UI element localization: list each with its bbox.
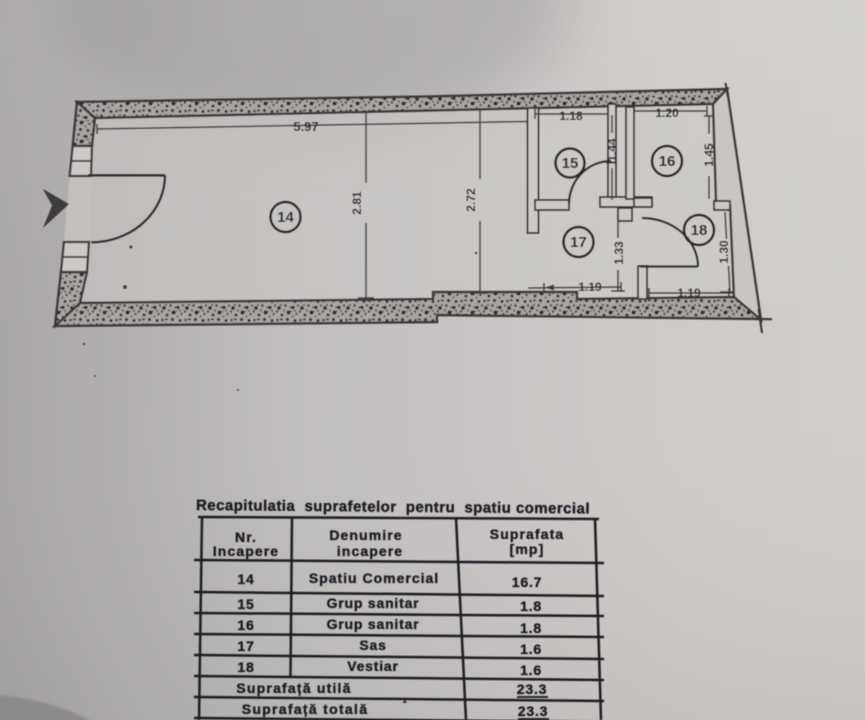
svg-text:14: 14 [277,209,294,226]
svg-text:1.33: 1.33 [612,241,626,265]
svg-text:17: 17 [237,638,254,654]
svg-text:Incapere: Incapere [213,543,279,559]
svg-text:2.72: 2.72 [464,188,478,212]
svg-text:Recapitulatia suprafetelor p: Recapitulatia suprafetelor pentru spatiu… [196,497,590,517]
svg-text:23.3: 23.3 [518,703,548,719]
svg-text:Grup sanitar: Grup sanitar [327,616,420,632]
svg-text:14: 14 [237,571,254,587]
svg-text:15: 15 [562,155,579,172]
svg-text:2.81: 2.81 [350,191,364,215]
svg-text:¹: ¹ [403,696,408,710]
svg-text:1.45: 1.45 [702,143,716,167]
svg-text:1.6: 1.6 [520,641,542,657]
svg-text:1.18: 1.18 [559,109,583,123]
svg-text:Grup sanitar: Grup sanitar [327,595,420,611]
svg-text:18: 18 [691,222,708,239]
svg-text:17: 17 [570,234,587,251]
svg-text:1.44: 1.44 [605,138,619,162]
svg-text:15: 15 [237,596,254,612]
svg-text:23.3: 23.3 [517,681,547,697]
svg-text:[mp]: [mp] [510,541,545,557]
svg-text:Vestiar: Vestiar [347,658,399,674]
svg-text:1.6: 1.6 [520,662,542,678]
svg-text:16: 16 [659,153,676,170]
svg-text:1.8: 1.8 [520,598,542,614]
svg-text:Spatiu Comercial: Spatiu Comercial [309,570,439,586]
svg-text:Sas: Sas [359,637,386,653]
svg-text:5.97: 5.97 [293,119,318,134]
svg-text:16: 16 [237,617,254,633]
svg-text:Suprafata: Suprafata [490,526,564,542]
svg-text:1.19: 1.19 [578,280,602,294]
svg-text:Suprafață totală: Suprafață totală [242,701,369,717]
svg-text:18: 18 [237,659,254,675]
svg-text:incapere: incapere [337,543,403,559]
svg-text:16.7: 16.7 [512,574,542,590]
svg-text:Denumire: Denumire [329,527,402,543]
svg-text:1.30: 1.30 [717,240,731,264]
svg-text:Suprafață utilă: Suprafață utilă [236,680,351,696]
svg-text:1.8: 1.8 [520,620,542,636]
svg-text:1.19: 1.19 [677,286,701,300]
svg-text:1.20: 1.20 [655,106,679,120]
